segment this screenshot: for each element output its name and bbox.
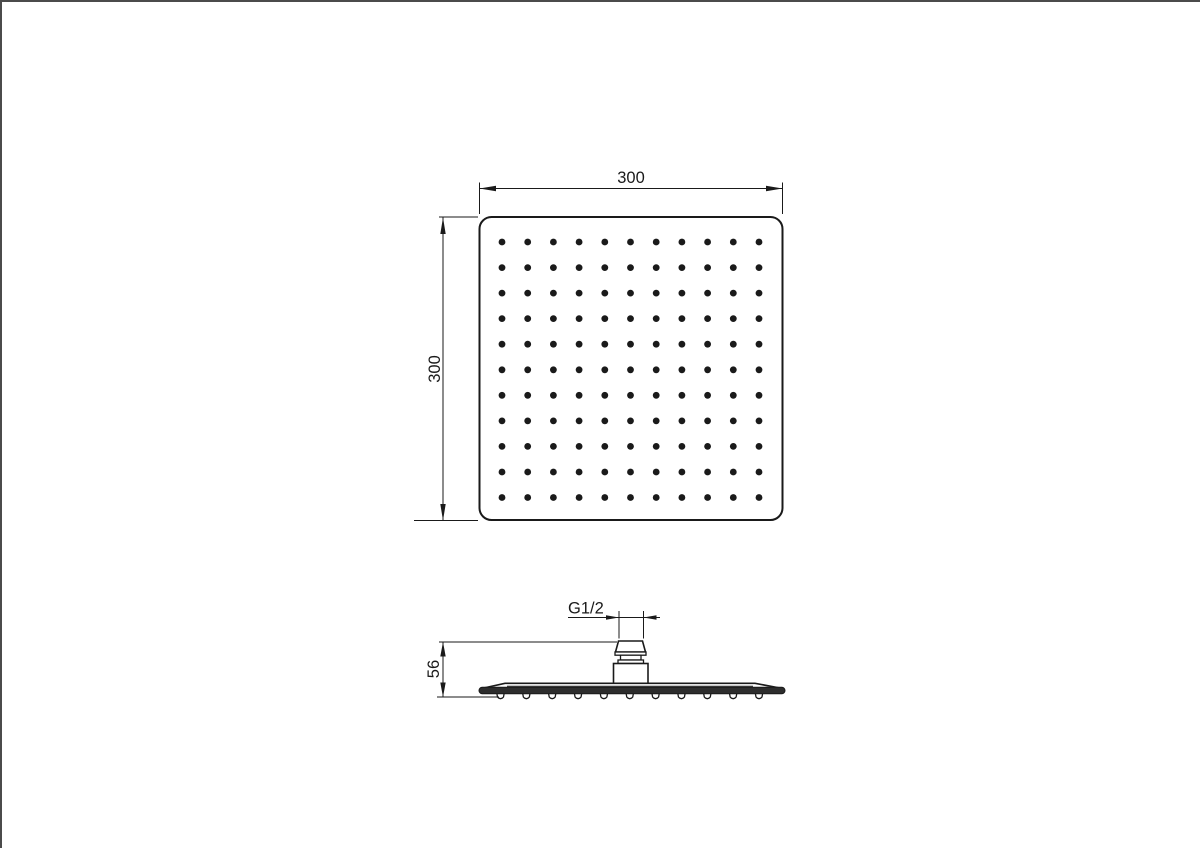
nozzle-dot — [576, 239, 583, 246]
nozzle-dot — [730, 418, 737, 425]
nozzle-dot — [679, 392, 686, 399]
nozzle-dot — [524, 494, 531, 501]
nozzle-dot — [704, 418, 711, 425]
nozzle-dot — [524, 392, 531, 399]
nozzle-dot — [601, 494, 608, 501]
nozzle-dot — [576, 366, 583, 373]
nozzle-dot — [653, 443, 660, 450]
nozzle-dot — [524, 290, 531, 297]
nozzle-dot — [601, 366, 608, 373]
nozzle-dot — [601, 392, 608, 399]
thread-dimension: G1/2 — [568, 600, 660, 639]
inlet-connector — [614, 641, 649, 687]
nozzle-dot — [576, 494, 583, 501]
nozzle-dot — [653, 239, 660, 246]
nozzle-dot — [756, 392, 763, 399]
nozzle-dot — [756, 290, 763, 297]
nozzle-dot — [653, 392, 660, 399]
nozzle-dot — [730, 239, 737, 246]
nozzle-dot — [576, 341, 583, 348]
nozzle-dot — [730, 315, 737, 322]
nozzle-dot — [499, 418, 506, 425]
nozzle-dot — [704, 290, 711, 297]
nozzle-dot — [576, 443, 583, 450]
nozzle-dot — [653, 366, 660, 373]
nozzle-dot — [550, 239, 557, 246]
nozzle-dot — [730, 264, 737, 271]
side-view: G1/2 56 — [425, 600, 785, 699]
nozzle-dot — [550, 494, 557, 501]
nozzle-dot — [730, 392, 737, 399]
arrow-up-icon — [440, 642, 445, 657]
nozzle-dot — [550, 290, 557, 297]
nozzle-dot — [730, 341, 737, 348]
nozzle-dot — [679, 418, 686, 425]
technical-drawing-svg: 300 300 — [2, 2, 1200, 848]
nozzle-dot — [601, 469, 608, 476]
nozzle-dot — [524, 264, 531, 271]
nozzle-dot — [499, 494, 506, 501]
nozzle-dot — [704, 315, 711, 322]
thread-nut-outline — [616, 641, 646, 652]
nozzle-dot — [627, 418, 634, 425]
arrow-right-icon — [606, 615, 619, 619]
width-dimension-label: 300 — [617, 169, 645, 187]
nozzle-dot — [679, 443, 686, 450]
nozzle-dot — [756, 443, 763, 450]
nozzle-dot — [576, 418, 583, 425]
nozzle-dot — [627, 341, 634, 348]
arrow-up-icon — [440, 218, 445, 235]
nozzle-dot — [499, 443, 506, 450]
nozzle-dot — [627, 264, 634, 271]
nozzle-dot — [524, 239, 531, 246]
nozzle-dot — [499, 239, 506, 246]
nozzle-dot — [550, 366, 557, 373]
nozzle-dot — [704, 469, 711, 476]
nozzle-dot — [704, 341, 711, 348]
nozzle-dot — [679, 341, 686, 348]
nozzle-dot — [756, 341, 763, 348]
nozzle-dot — [627, 366, 634, 373]
nozzle-dot — [499, 315, 506, 322]
nozzle-dot — [627, 392, 634, 399]
nozzle-dot — [653, 494, 660, 501]
nozzle-dot — [704, 443, 711, 450]
nozzle-dot — [704, 494, 711, 501]
nozzle-dot — [524, 443, 531, 450]
nozzle-dot — [730, 290, 737, 297]
nozzle-dot — [653, 469, 660, 476]
nozzle-dot — [627, 315, 634, 322]
nozzle-dot — [601, 443, 608, 450]
nozzle-dot — [499, 341, 506, 348]
nozzle-dot — [679, 469, 686, 476]
nozzle-dot — [756, 239, 763, 246]
nozzle-dot — [627, 239, 634, 246]
nozzle-dot — [653, 315, 660, 322]
nozzle-dot — [730, 443, 737, 450]
arrow-right-icon — [766, 186, 783, 191]
nozzle-dot — [601, 418, 608, 425]
nozzle-dot — [601, 264, 608, 271]
connector-neck — [621, 655, 642, 660]
nozzle-dot — [524, 418, 531, 425]
nozzle-dot — [756, 469, 763, 476]
nozzle-dot — [550, 315, 557, 322]
nozzle-dot — [550, 469, 557, 476]
nozzle-dot — [653, 264, 660, 271]
nozzle-dot — [756, 366, 763, 373]
nozzle-dot — [756, 494, 763, 501]
nozzle-dot — [550, 264, 557, 271]
nozzle-dot — [704, 239, 711, 246]
nozzle-dot — [499, 392, 506, 399]
nozzle-dot — [576, 469, 583, 476]
arrow-down-icon — [440, 683, 445, 698]
nozzle-dot — [627, 290, 634, 297]
nozzle-dot — [524, 366, 531, 373]
nozzle-dot — [576, 264, 583, 271]
nozzle-dot — [627, 469, 634, 476]
nozzle-dot — [576, 392, 583, 399]
drawing-canvas: 300 300 — [0, 0, 1200, 848]
nozzle-dot — [730, 366, 737, 373]
nozzle-dot — [576, 290, 583, 297]
nozzle-dot — [653, 290, 660, 297]
nozzle-dot — [499, 264, 506, 271]
nozzle-dot — [627, 443, 634, 450]
nozzle-dot — [601, 341, 608, 348]
nozzle-dot — [524, 341, 531, 348]
nozzle-dot — [730, 494, 737, 501]
arrow-left-icon — [644, 615, 657, 619]
nozzle-dot — [756, 418, 763, 425]
nozzle-dot — [704, 264, 711, 271]
nozzle-dot — [499, 469, 506, 476]
nozzle-dot — [679, 315, 686, 322]
width-dimension: 300 — [480, 169, 783, 214]
nozzle-dot — [679, 290, 686, 297]
nozzle-dot — [601, 239, 608, 246]
side-height-dimension-label: 56 — [425, 660, 443, 678]
nozzle-dot — [679, 239, 686, 246]
nozzle-dot — [550, 392, 557, 399]
nozzle-dot — [550, 443, 557, 450]
nozzle-dot — [550, 341, 557, 348]
nozzle-dot — [679, 366, 686, 373]
thread-dimension-label: G1/2 — [568, 600, 604, 618]
nozzle-dot — [679, 264, 686, 271]
height-dimension-label: 300 — [426, 355, 444, 383]
nozzle-dot — [756, 315, 763, 322]
nozzle-dot — [499, 290, 506, 297]
nozzle-dot — [653, 418, 660, 425]
arrow-left-icon — [480, 186, 497, 191]
nozzle-dot — [576, 315, 583, 322]
nozzle-dot — [756, 264, 763, 271]
plate-rim-band — [479, 687, 785, 693]
nozzle-dot — [704, 366, 711, 373]
top-view: 300 300 — [414, 169, 783, 521]
nozzle-dot — [550, 418, 557, 425]
nozzle-dot — [601, 315, 608, 322]
height-dimension: 300 — [414, 217, 478, 521]
nozzle-dot — [499, 366, 506, 373]
arrow-down-icon — [440, 504, 445, 521]
nozzle-dot — [601, 290, 608, 297]
nozzle-dot — [627, 494, 634, 501]
nozzle-dot — [679, 494, 686, 501]
nozzle-dot — [524, 315, 531, 322]
nozzle-dot — [730, 469, 737, 476]
nozzle-dot — [704, 392, 711, 399]
nozzle-dot — [653, 341, 660, 348]
nozzle-dot — [524, 469, 531, 476]
